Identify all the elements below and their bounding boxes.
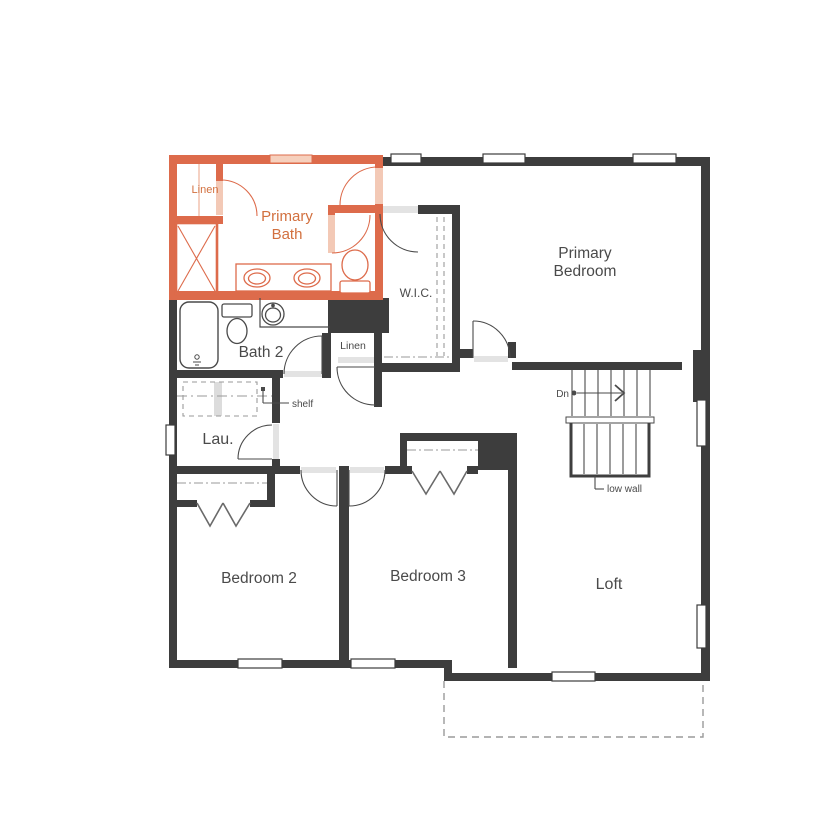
bedroom3-label: Bedroom 3 xyxy=(390,568,466,585)
roof-below-outline xyxy=(444,681,703,737)
bifold-doors xyxy=(197,471,467,526)
loft-label: Loft xyxy=(596,576,623,593)
stair-treads-lower xyxy=(584,424,636,474)
linen-bath-label: Linen xyxy=(192,184,219,196)
bedroom3-door xyxy=(349,470,385,506)
low-wall-pointer xyxy=(595,476,604,489)
floor-plan-page: Primary Bath Linen Primary Bedroom W.I.C… xyxy=(0,0,840,840)
bath2-label: Bath 2 xyxy=(239,344,284,361)
bedroom2-bifold-left xyxy=(197,503,223,526)
bath2-sink xyxy=(260,298,330,327)
bedroom2-door xyxy=(301,470,337,506)
primary-bedroom-label-line2: Bedroom xyxy=(554,263,617,280)
window-top-3 xyxy=(633,154,676,163)
primary-toilet xyxy=(340,250,370,293)
floor-plan-drawing: Primary Bath Linen Primary Bedroom W.I.C… xyxy=(0,0,840,840)
low-wall-label: low wall xyxy=(607,484,642,495)
primary-bedroom-label-line1: Primary xyxy=(558,245,612,262)
window-bottom-bedroom2 xyxy=(238,659,282,668)
primary-bath-label-line1: Primary xyxy=(261,208,313,225)
laundry-label: Lau. xyxy=(202,431,233,448)
window-right-2 xyxy=(697,605,706,648)
stair-landing-edge xyxy=(566,417,654,423)
laundry-divider xyxy=(214,382,222,416)
linen-hall-door xyxy=(337,367,375,405)
laundry-door xyxy=(238,425,272,459)
bathtub xyxy=(180,302,218,368)
window-top-1 xyxy=(391,154,421,163)
primary-bedroom-door xyxy=(473,321,510,358)
window-primary-bath xyxy=(270,155,312,163)
toilet-room-door-arc xyxy=(332,215,370,253)
staircase xyxy=(566,370,654,489)
vanity xyxy=(236,264,331,291)
primary-bath-label-line2: Bath xyxy=(272,226,303,243)
bedroom2-bifold-right xyxy=(223,503,250,526)
bath2-toilet xyxy=(222,304,252,344)
window-right-1 xyxy=(697,400,706,446)
bedroom2-label: Bedroom 2 xyxy=(221,570,297,587)
wic-door-arc xyxy=(380,214,418,252)
window-bottom-loft xyxy=(552,672,595,681)
bedroom3-bifold-right xyxy=(440,471,467,494)
wic-label: W.I.C. xyxy=(400,286,433,300)
linen-bath-door-arc xyxy=(221,180,257,216)
window-bottom-bedroom3 xyxy=(351,659,395,668)
linen-hall-label: Linen xyxy=(340,340,366,352)
shelf-label: shelf xyxy=(292,399,313,410)
window-left-1 xyxy=(166,425,175,455)
down-label: Dn xyxy=(556,389,569,400)
window-top-2 xyxy=(483,154,525,163)
bath-entry-door-arc xyxy=(340,167,378,205)
shower xyxy=(176,223,217,294)
bedroom3-bifold-left xyxy=(412,471,440,494)
bath2-door xyxy=(284,336,322,374)
